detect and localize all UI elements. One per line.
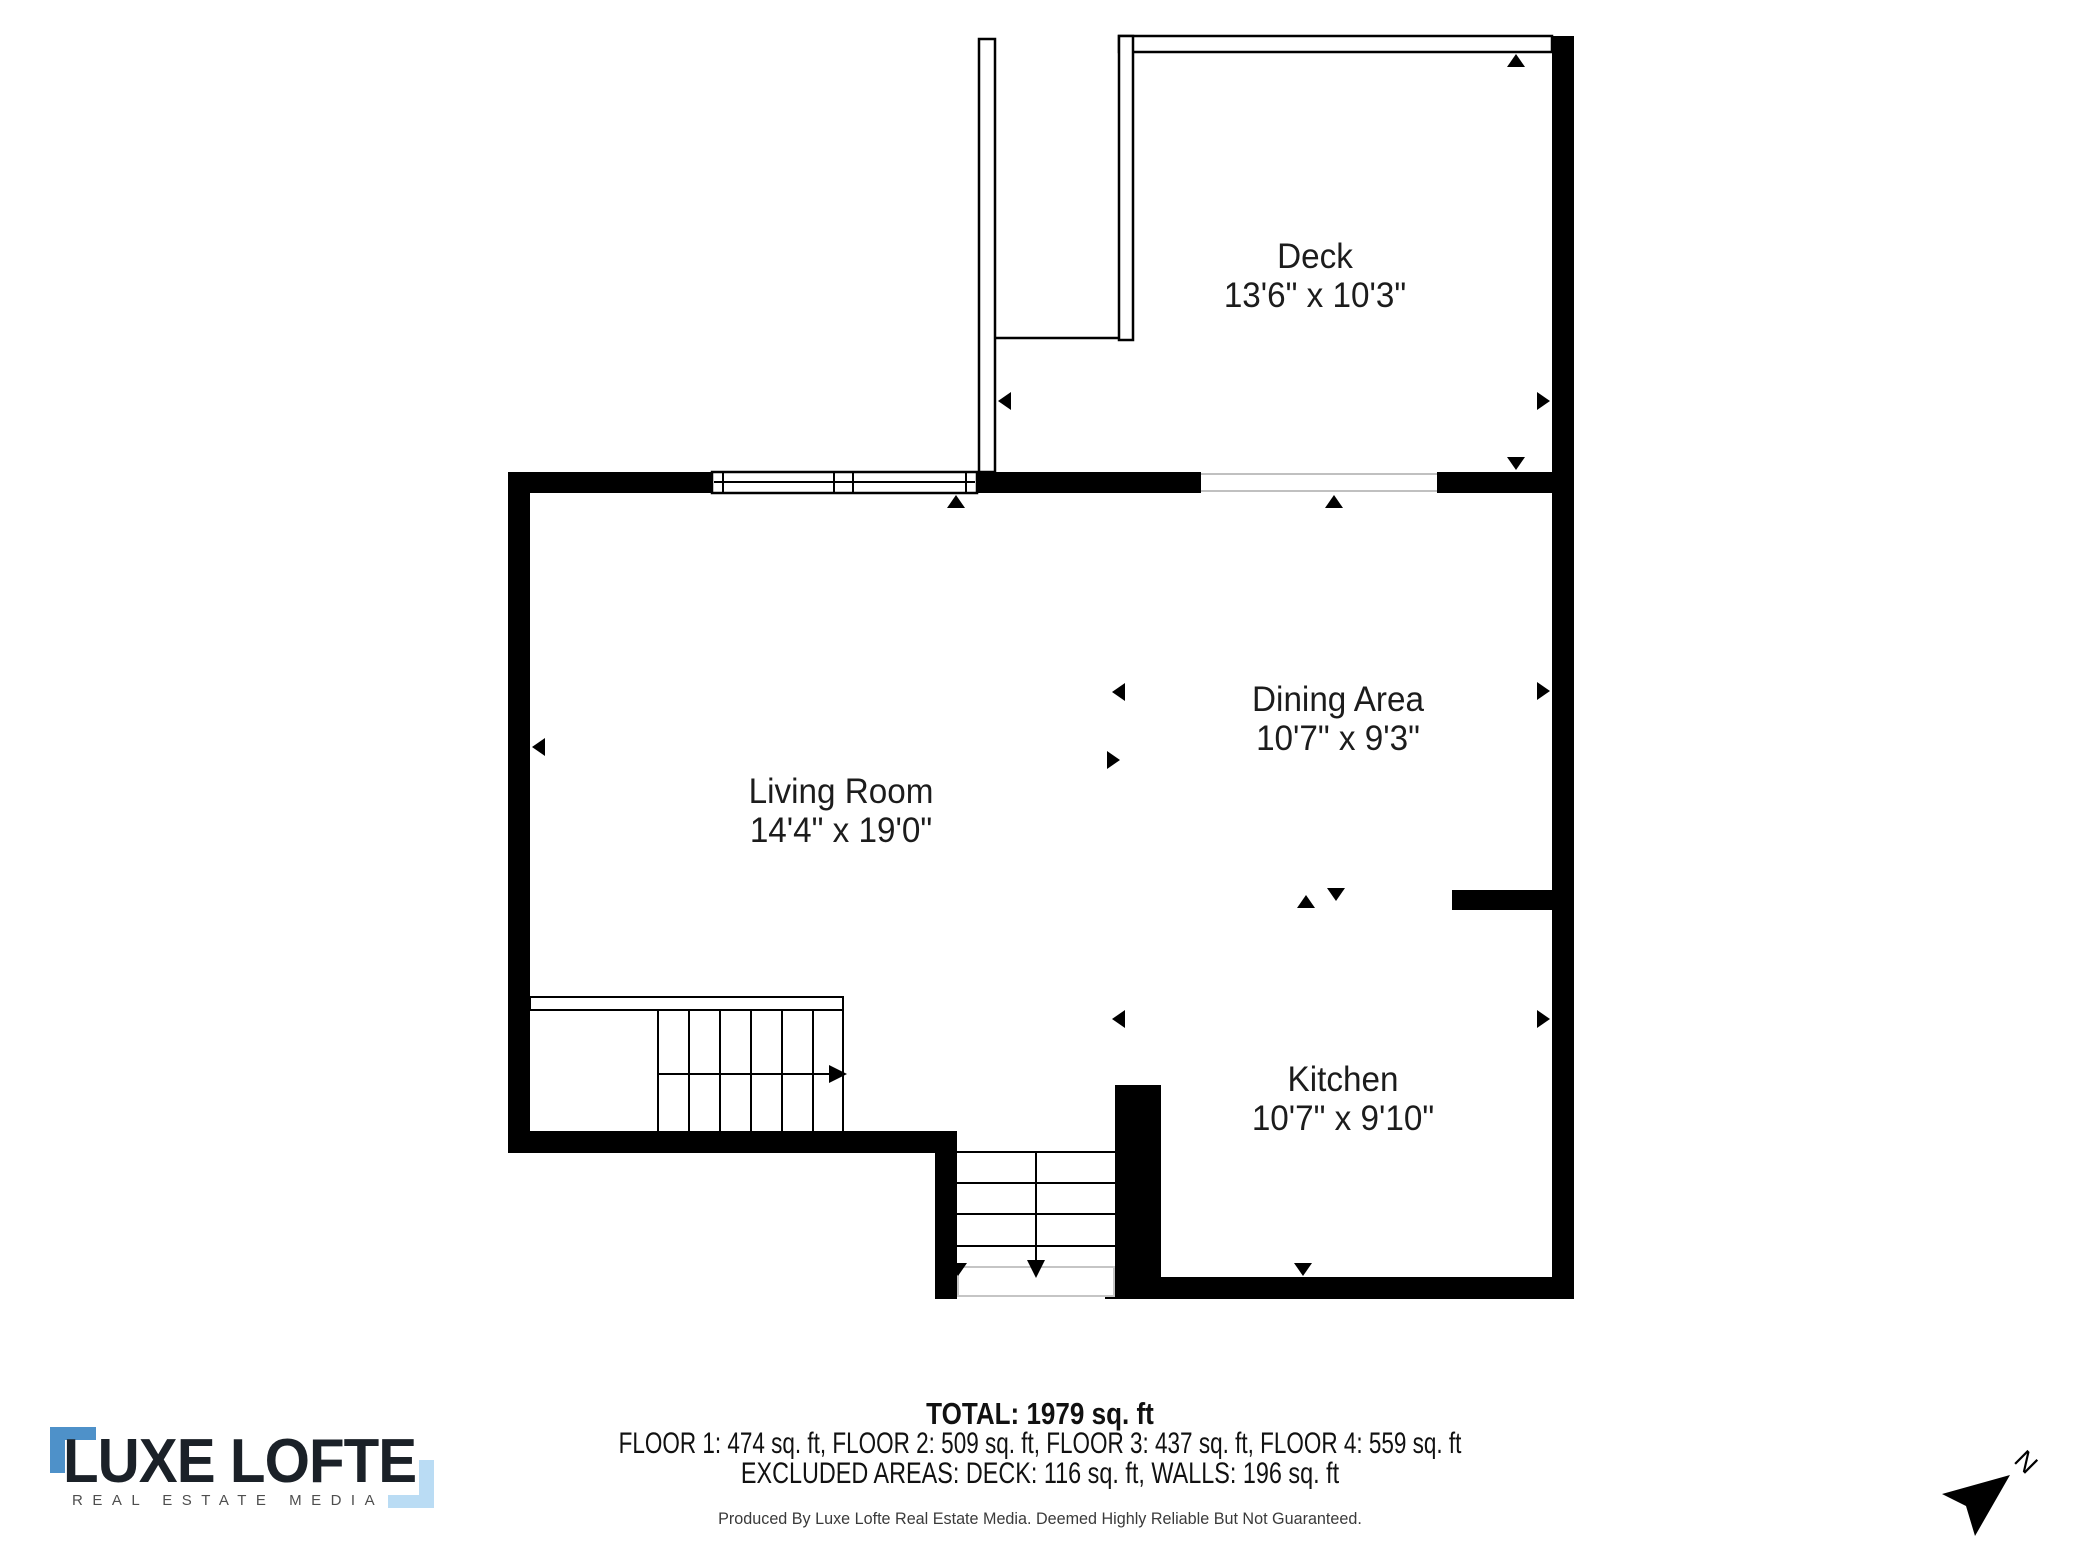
dimension-arrow-right: [1537, 682, 1550, 700]
railing-segment: [1119, 36, 1552, 52]
dimension-arrow-left: [532, 738, 545, 756]
dimension-arrow-right: [1537, 392, 1550, 410]
wall-segment: [508, 472, 712, 493]
stair-direction-arrow-icon: [829, 1065, 847, 1083]
window: [712, 472, 977, 493]
stair-landing-rail: [530, 997, 843, 1010]
dimension-arrow-down: [1294, 1263, 1312, 1276]
room-name: Deck: [1125, 237, 1505, 276]
staircase-down: [957, 1152, 1115, 1296]
dimension-arrow-right: [1107, 751, 1120, 769]
floor-areas-text: FLOOR 1: 474 sq. ft, FLOOR 2: 509 sq. ft…: [260, 1427, 1820, 1461]
dimension-arrow-up: [947, 495, 965, 508]
room-name: Living Room: [651, 772, 1031, 811]
room-label-dining-area: Dining Area 10'7" x 9'3": [1148, 680, 1528, 758]
floor-plan-page: N Deck 13'6" x 10'3" Dining Area 10'7" x…: [0, 0, 2080, 1560]
staircase-up: [530, 997, 847, 1131]
logo-tagline: REAL ESTATE MEDIA: [72, 1492, 384, 1509]
dimension-arrow-up: [1325, 495, 1343, 508]
stair-treads: [658, 997, 843, 1131]
deck-door-opening: [1201, 474, 1437, 491]
room-label-deck: Deck 13'6" x 10'3": [1125, 237, 1505, 315]
wall-segment: [977, 472, 1201, 493]
dimension-arrow-down: [1327, 888, 1345, 901]
disclaimer-text: Produced By Luxe Lofte Real Estate Media…: [52, 1509, 2028, 1529]
room-dimensions: 10'7" x 9'10": [1153, 1099, 1533, 1138]
room-dimensions: 13'6" x 10'3": [1125, 276, 1505, 315]
dimension-arrow-up: [1297, 895, 1315, 908]
wall-segment: [1105, 1277, 1573, 1299]
room-dimensions: 14'4" x 19'0": [651, 811, 1031, 850]
railing-segment: [979, 39, 995, 472]
excluded-areas-text: EXCLUDED AREAS: DECK: 116 sq. ft, WALLS:…: [229, 1457, 1851, 1491]
room-label-living-room: Living Room 14'4" x 19'0": [651, 772, 1031, 850]
room-name: Dining Area: [1148, 680, 1528, 719]
dimension-arrow-down: [1507, 457, 1525, 470]
wall-segment: [1452, 890, 1573, 910]
dimension-arrow-left: [1112, 1010, 1125, 1028]
compass-north-label: N: [2008, 1444, 2043, 1479]
wall-segment: [508, 472, 530, 1153]
dimension-arrow-left: [1112, 683, 1125, 701]
wall-segment: [508, 1131, 957, 1153]
floor-plan-drawing: N: [0, 0, 2080, 1560]
dimension-arrow-up: [1507, 54, 1525, 67]
room-label-kitchen: Kitchen 10'7" x 9'10": [1153, 1060, 1533, 1138]
logo-text: LUXE LOFTE: [63, 1436, 416, 1488]
room-name: Kitchen: [1153, 1060, 1533, 1099]
room-dimensions: 10'7" x 9'3": [1148, 719, 1528, 758]
wall-segment: [935, 1131, 957, 1299]
dimension-arrow-right: [1537, 1010, 1550, 1028]
wall-segment: [1552, 36, 1574, 1299]
dimension-arrow-left: [998, 392, 1011, 410]
